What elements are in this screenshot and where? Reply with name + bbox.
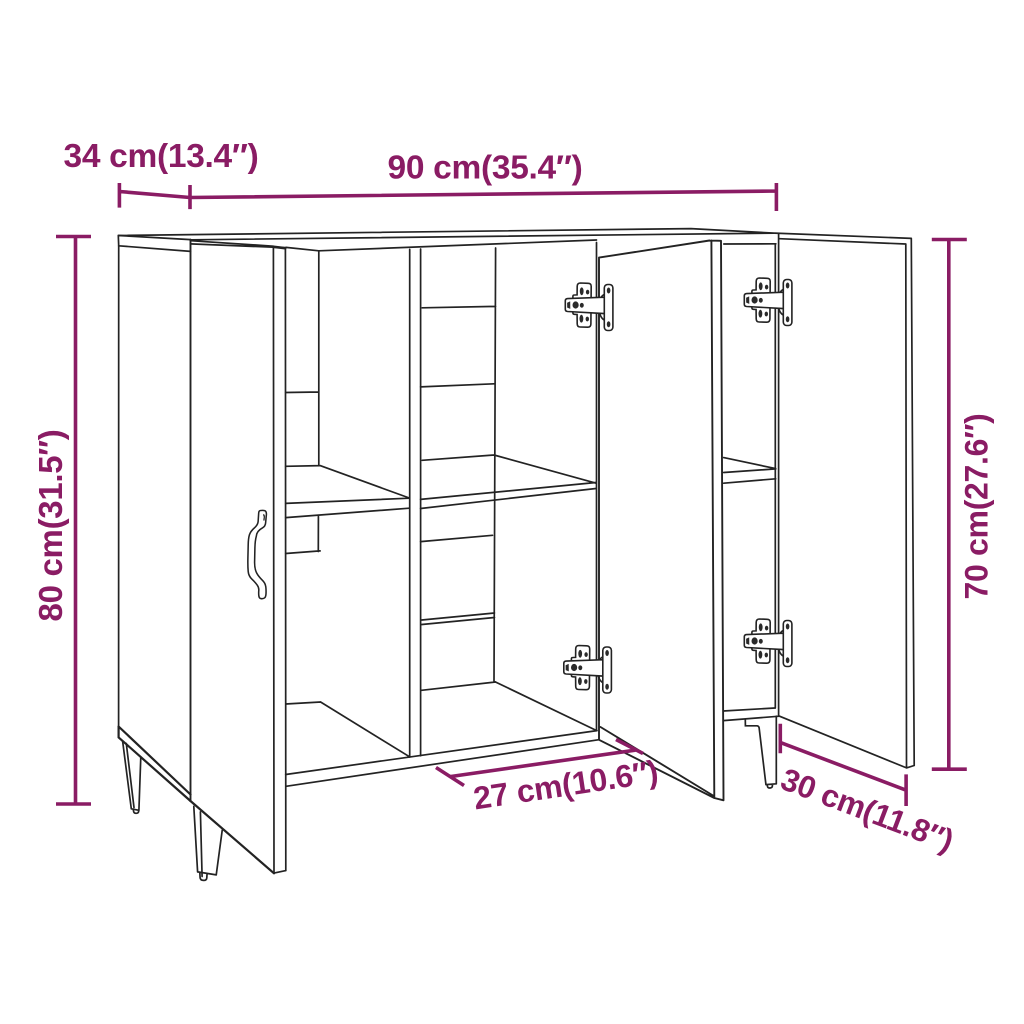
svg-text:70 cm(27.6″): 70 cm(27.6″) xyxy=(959,413,995,599)
svg-text:80 cm(31.5″): 80 cm(31.5″) xyxy=(32,430,69,622)
svg-text:34 cm(13.4″): 34 cm(13.4″) xyxy=(64,138,259,175)
svg-text:90 cm(35.4″): 90 cm(35.4″) xyxy=(388,150,583,187)
